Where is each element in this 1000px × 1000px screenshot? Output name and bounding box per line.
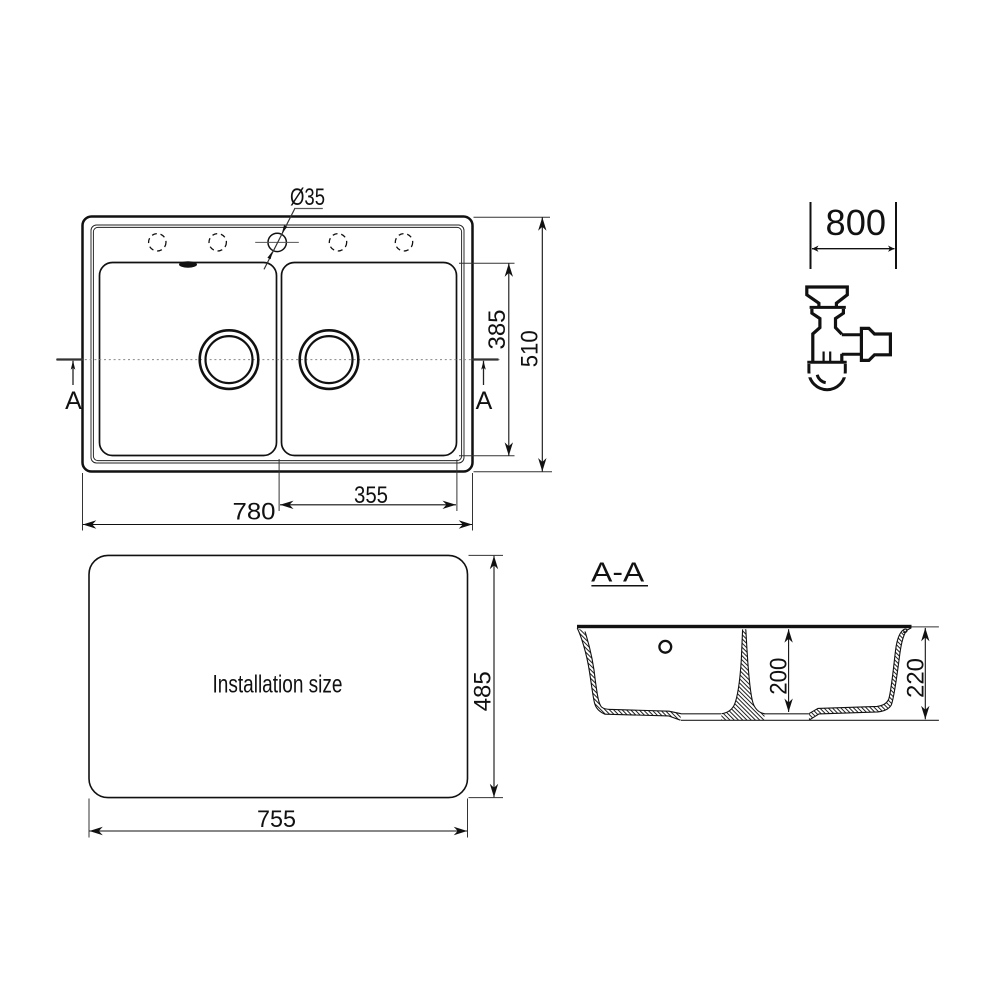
svg-text:Ø35: Ø35 — [290, 184, 325, 211]
svg-text:385: 385 — [484, 310, 511, 350]
svg-text:A: A — [65, 387, 82, 415]
svg-text:800: 800 — [826, 202, 887, 243]
svg-text:485: 485 — [469, 671, 496, 711]
svg-text:220: 220 — [902, 658, 929, 698]
svg-text:355: 355 — [354, 482, 388, 509]
svg-text:780: 780 — [233, 499, 276, 526]
svg-text:A-A: A-A — [591, 556, 644, 587]
svg-text:200: 200 — [766, 658, 793, 695]
svg-text:A: A — [476, 387, 493, 415]
svg-text:510: 510 — [517, 330, 544, 367]
svg-text:Installation size: Installation size — [213, 671, 343, 699]
svg-text:755: 755 — [257, 806, 296, 833]
